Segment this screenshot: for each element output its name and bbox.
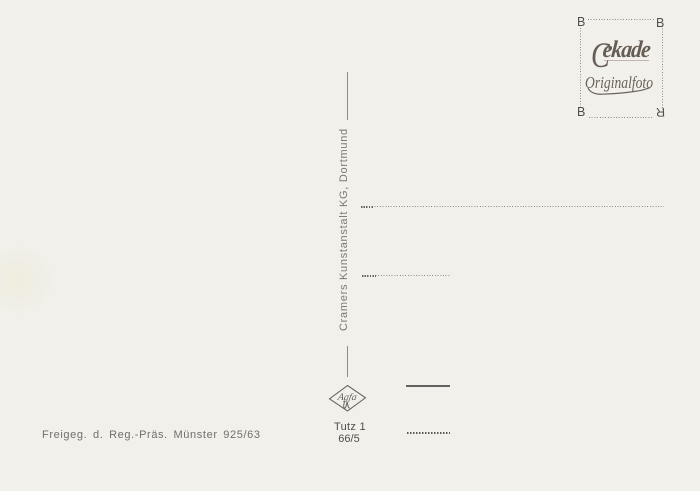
- svg-text:Agfa: Agfa: [336, 392, 358, 403]
